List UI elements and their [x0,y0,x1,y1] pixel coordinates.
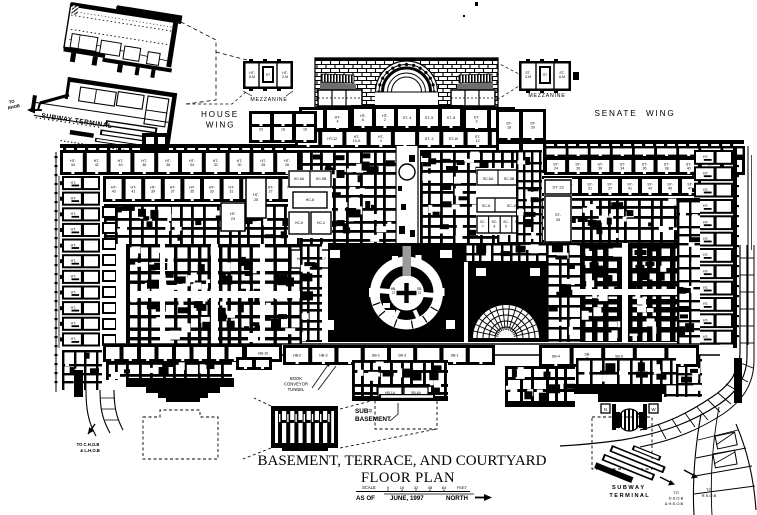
svg-text:ST- 8: ST- 8 [447,116,456,120]
svg-text:& H.S.O.B: & H.S.O.B [665,501,684,506]
svg-text:SB-26A: SB-26A [403,316,415,320]
svg-text:3: 3 [476,120,478,124]
svg-text:30: 30 [238,163,242,167]
svg-text:HT-: HT- [703,335,708,339]
svg-text:HT: HT [266,73,270,77]
svg-text:HT-: HT- [703,319,708,323]
svg-text:38: 38 [665,167,669,171]
svg-text:SENATE: SENATE [595,109,638,118]
svg-text:HC-4: HC-4 [317,221,325,225]
svg-text:32: 32 [414,485,419,490]
svg-text:HT-: HT- [71,197,76,201]
svg-text:HT-: HT- [71,212,76,216]
svg-text:32: 32 [214,163,218,167]
svg-text:SC-5B: SC-5B [504,177,515,181]
svg-text:35: 35 [190,190,194,194]
svg-text:18: 18 [507,126,511,130]
svg-text:4: 4 [380,139,382,143]
svg-text:FLOOR PLAN: FLOOR PLAN [361,470,455,486]
svg-text:FEET: FEET [457,485,468,490]
svg-text:27: 27 [269,190,273,194]
svg-text:HT-: HT- [71,337,76,341]
svg-text:SB-6: SB-6 [615,355,623,359]
svg-text:43: 43 [648,187,652,191]
svg-text:BASEMENT, TERRACE, AND COURTYA: BASEMENT, TERRACE, AND COURTYARD [258,453,547,469]
svg-text:64: 64 [442,485,447,490]
svg-text:N: N [604,407,607,412]
svg-text:18: 18 [281,128,285,132]
svg-text:28: 28 [261,163,265,167]
svg-text:MEZZANINE: MEZZANINE [528,93,565,99]
svg-text:HB-3: HB-3 [319,354,327,358]
svg-text:6-M: 6-M [559,75,565,79]
svg-text:HT-: HT- [703,302,708,306]
svg-text:33: 33 [210,190,214,194]
svg-text:8: 8 [494,225,496,229]
svg-text:HT-: HT- [703,253,708,257]
svg-text:WING: WING [646,109,675,118]
svg-text:12: 12 [476,139,480,143]
svg-text:42: 42 [95,163,99,167]
svg-text:ST-: ST- [555,213,562,217]
svg-text:HT-: HT- [71,228,76,232]
svg-text:26: 26 [576,167,580,171]
svg-text:2: 2 [384,118,386,122]
svg-text:HT-: HT- [703,204,708,208]
svg-text:16: 16 [303,128,307,132]
svg-text:D.S.O.B: D.S.O.B [669,496,684,501]
svg-text:23: 23 [231,217,235,221]
svg-text:HC-5B: HC-5B [316,177,327,181]
svg-text:41: 41 [628,187,632,191]
svg-text:T E R M I N A L: T E R M I N A L [609,493,649,499]
svg-text:45: 45 [668,187,672,191]
svg-text:2-M: 2-M [525,75,531,79]
svg-text:& L.H.O.B: & L.H.O.B [80,448,100,453]
svg-text:SC-5A: SC-5A [483,177,494,181]
svg-text:MEZZANINE: MEZZANINE [250,97,287,103]
svg-text:47: 47 [688,187,692,191]
svg-text:HC-8: HC-8 [306,198,314,202]
svg-text:37: 37 [608,187,612,191]
svg-text:ST- 2: ST- 2 [425,137,434,141]
svg-text:HC-5A: HC-5A [294,177,305,181]
svg-text:TUNNEL: TUNNEL [288,387,305,392]
svg-text:HT-: HT- [71,290,76,294]
svg-text:26: 26 [285,163,289,167]
svg-text:HT-: HT- [703,237,708,241]
svg-text:38: 38 [142,163,146,167]
svg-text:SC-: SC- [503,220,509,224]
svg-text:HB-2: HB-2 [293,354,301,358]
svg-text:TO: TO [706,487,711,492]
svg-text:31: 31 [229,190,233,194]
svg-text:SB-1: SB-1 [451,354,459,358]
svg-text:36: 36 [166,163,170,167]
svg-text:HT-: HT- [71,259,76,263]
svg-text:BOOK: BOOK [290,376,302,381]
svg-text:20: 20 [531,126,535,130]
svg-text:SB-3: SB-3 [398,354,406,358]
svg-text:CONVEYOR: CONVEYOR [284,382,308,387]
svg-text:AS OF: AS OF [356,495,375,502]
svg-text:ST- 4: ST- 4 [403,116,412,120]
svg-text:34: 34 [190,163,194,167]
svg-text:SC-6: SC-6 [482,204,490,208]
svg-text:HT-: HT- [253,193,260,197]
svg-text:24: 24 [554,167,558,171]
svg-text:10-A: 10-A [353,139,361,143]
svg-text:ST- 6: ST- 6 [425,116,434,120]
svg-text:40: 40 [119,163,123,167]
svg-text:2-M: 2-M [282,75,288,79]
svg-text:HT-: HT- [71,275,76,279]
svg-text:4: 4 [337,120,339,124]
svg-text:ST- 23: ST- 23 [552,186,563,190]
svg-text:40: 40 [687,167,691,171]
svg-text:31: 31 [588,187,592,191]
svg-text:37: 37 [171,190,175,194]
svg-text:TO C.H.O.B: TO C.H.O.B [77,442,100,447]
svg-text:HB-10: HB-10 [258,352,268,356]
svg-text:7: 7 [482,225,484,229]
svg-text:HT-: HT- [230,212,237,216]
svg-text:HC-6: HC-6 [295,221,303,225]
svg-text:HT-: HT- [703,270,708,274]
svg-text:21: 21 [418,291,422,295]
svg-text:16: 16 [400,485,405,490]
svg-text:HT-: HT- [703,221,708,225]
svg-text:34: 34 [620,167,624,171]
svg-text:6-M: 6-M [249,75,255,79]
svg-text:27: 27 [392,291,396,295]
svg-text:ST-10: ST-10 [449,137,459,141]
svg-text:HT-: HT- [703,155,708,159]
svg-text:HT-: HT- [71,306,76,310]
svg-text:JUNE, 1997: JUNE, 1997 [390,495,424,502]
svg-text:HT-: HT- [71,322,76,326]
svg-text:30: 30 [598,167,602,171]
svg-text:48: 48 [428,485,433,490]
svg-text:HT-12: HT-12 [327,137,337,141]
svg-text:36: 36 [643,167,647,171]
svg-text:HT-: HT- [703,172,708,176]
svg-text:NORTH: NORTH [446,495,469,502]
svg-text:SCALE: SCALE [362,485,376,490]
svg-text:HOUSE: HOUSE [201,110,239,119]
svg-text:HT-: HT- [71,243,76,247]
svg-text:25: 25 [254,198,258,202]
svg-text:R.S.O.B: R.S.O.B [702,493,717,498]
svg-text:20: 20 [259,128,263,132]
svg-text:ST: ST [543,73,547,77]
svg-text:SC-10: SC-10 [507,204,517,208]
svg-text:41: 41 [131,190,135,194]
svg-text:SB-4: SB-4 [552,355,560,359]
svg-text:43: 43 [112,190,116,194]
svg-text:39: 39 [151,190,155,194]
svg-text:9: 9 [505,225,507,229]
svg-text:HT-: HT- [703,188,708,192]
svg-text:TO: TO [673,490,678,495]
svg-text:SC-: SC- [492,220,498,224]
svg-text:S U B W A Y: S U B W A Y [612,485,644,491]
svg-text:HT-: HT- [703,286,708,290]
svg-text:6: 6 [362,118,364,122]
svg-text:25: 25 [556,218,560,222]
svg-text:SC-: SC- [480,220,486,224]
svg-text:HT-: HT- [71,181,76,185]
svg-text:SUB=: SUB= [355,408,372,415]
svg-text:BASEMENT: BASEMENT [355,416,391,423]
svg-text:WING: WING [206,121,235,130]
svg-text:44: 44 [71,163,75,167]
svg-text:SB-2: SB-2 [372,354,380,358]
